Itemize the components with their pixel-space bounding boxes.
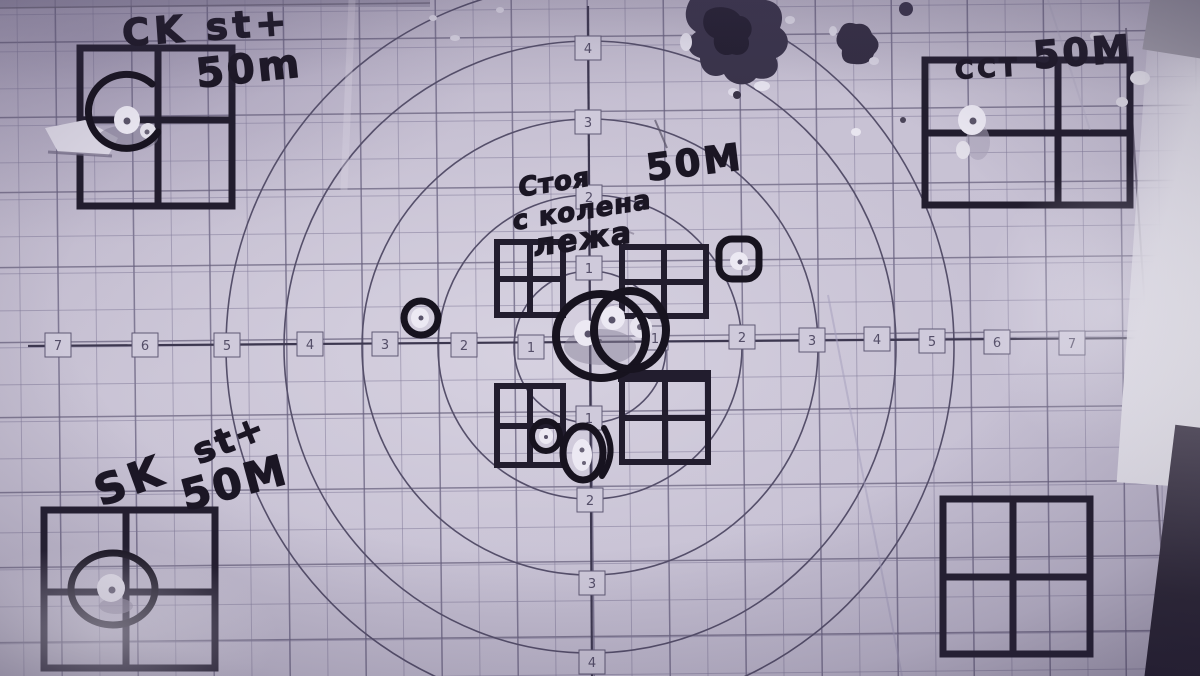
axis-box-v-bottom-3: 3 — [579, 571, 605, 595]
axis-box-h-left-2: 2 — [451, 333, 477, 357]
handwriting-top-right-session: CCT — [954, 52, 1021, 84]
svg-text:3: 3 — [808, 334, 816, 349]
handwriting-top-right-distance: 50M — [1032, 27, 1135, 78]
bullet-hole-lower-left-square — [539, 428, 553, 444]
bullet-hole-right-of-center — [730, 252, 750, 271]
svg-text:6: 6 — [141, 339, 149, 354]
axis-box-v-top-3: 3 — [575, 110, 601, 134]
svg-text:5: 5 — [223, 339, 231, 354]
svg-text:7: 7 — [54, 339, 62, 354]
bullet-hole-below-center — [572, 439, 592, 471]
axis-box-v-top-4: 4 — [575, 36, 601, 60]
svg-text:2: 2 — [460, 339, 468, 354]
svg-text:4: 4 — [584, 42, 592, 57]
bullet-hole-left-mid — [411, 308, 429, 328]
axis-box-h-left-5: 5 — [214, 333, 240, 357]
axis-box-h-right-5: 5 — [919, 329, 945, 353]
svg-text:7: 7 — [1068, 337, 1076, 352]
target-photo: 7 6 5 4 3 2 1 1 2 3 4 5 6 7 4 3 2 1 1 2 … — [0, 0, 1200, 676]
axis-box-v-top-1: 1 — [576, 256, 602, 280]
svg-text:2: 2 — [586, 494, 594, 509]
svg-text:2: 2 — [738, 331, 746, 346]
axis-box-v-bottom-2: 2 — [577, 488, 603, 512]
svg-text:1: 1 — [585, 262, 593, 277]
svg-text:4: 4 — [873, 333, 881, 348]
axis-box-h-right-6: 6 — [984, 330, 1010, 354]
svg-text:6: 6 — [993, 336, 1001, 351]
svg-text:3: 3 — [588, 577, 596, 592]
svg-text:1: 1 — [651, 332, 659, 347]
axis-box-h-left-7: 7 — [45, 333, 71, 357]
svg-text:4: 4 — [588, 656, 596, 671]
svg-text:1: 1 — [527, 341, 535, 356]
axis-box-h-right-4: 4 — [864, 327, 890, 351]
svg-text:4: 4 — [306, 338, 314, 353]
axis-box-h-left-1: 1 — [518, 335, 544, 359]
svg-text:3: 3 — [381, 338, 389, 353]
axis-box-h-right-2: 2 — [729, 325, 755, 349]
axis-box-h-right-3: 3 — [799, 328, 825, 352]
axis-box-v-bottom-4: 4 — [579, 650, 605, 674]
target-print-layer: 7 6 5 4 3 2 1 1 2 3 4 5 6 7 4 3 2 1 1 2 … — [0, 0, 1200, 676]
axis-box-h-left-6: 6 — [132, 333, 158, 357]
svg-text:3: 3 — [584, 116, 592, 131]
axis-box-h-left-3: 3 — [372, 332, 398, 356]
center-square-lower-right — [618, 373, 710, 462]
axis-box-h-right-7: 7 — [1059, 331, 1085, 355]
svg-text:5: 5 — [928, 335, 936, 350]
corner-square-bottom-right — [943, 499, 1090, 654]
axis-box-h-left-4: 4 — [297, 332, 323, 356]
